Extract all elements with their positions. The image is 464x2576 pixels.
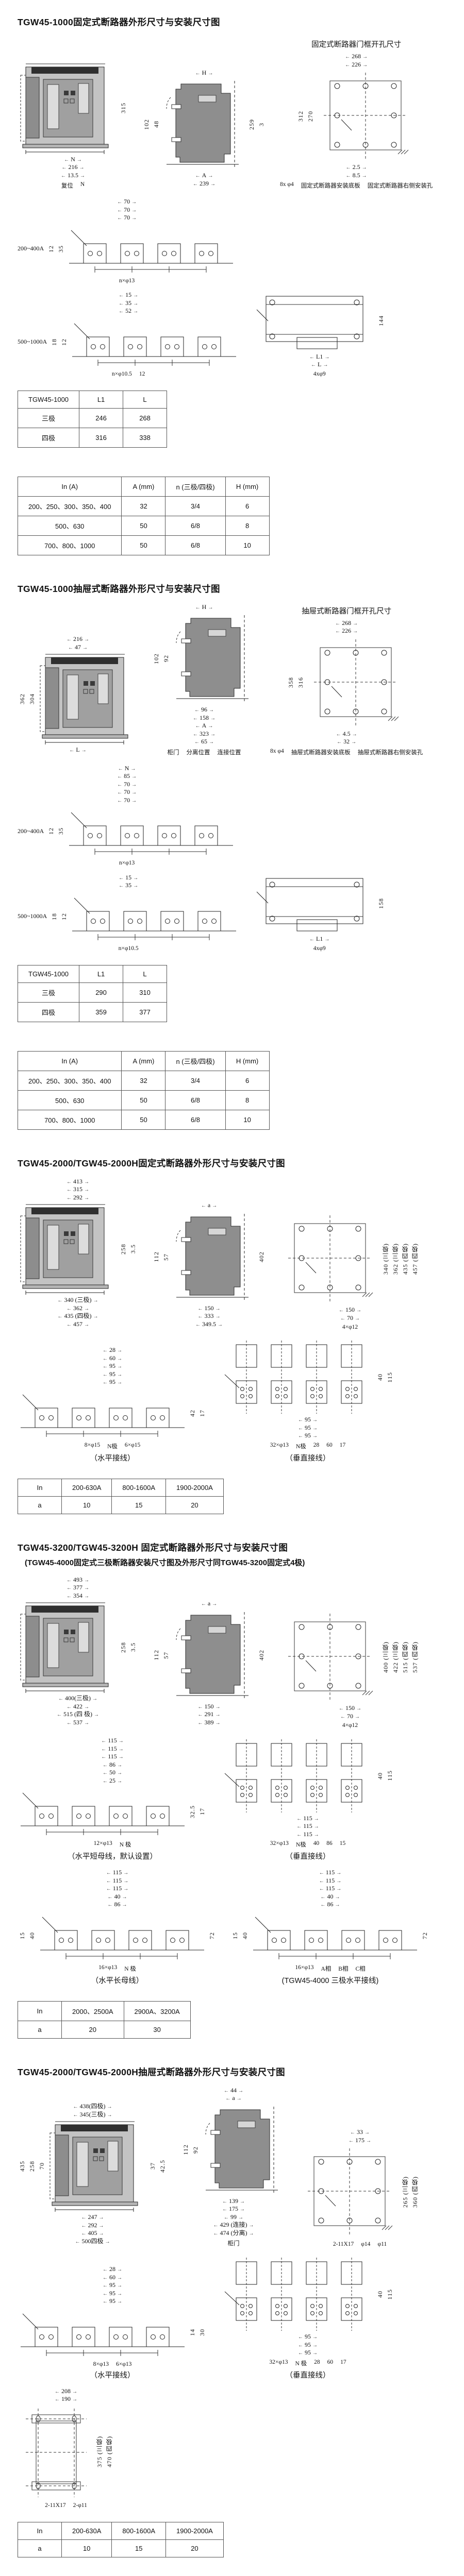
- figure-caption: （垂直接线）: [286, 2369, 330, 2380]
- dim-label: 12: [60, 913, 68, 920]
- table-cell: H (mm): [225, 1051, 269, 1071]
- table-cell: In: [18, 2522, 62, 2539]
- dim-label: 400 (三极): [382, 1641, 390, 1673]
- table-cell: 338: [123, 428, 167, 447]
- dim-label: 291: [198, 1710, 221, 1719]
- dim-label: 70: [38, 2162, 46, 2170]
- dim-label: 115: [319, 1885, 342, 1893]
- dim-label: 226: [335, 627, 358, 635]
- table-cell: 700、800、1000: [18, 535, 122, 555]
- left-labels: 1235: [46, 245, 66, 252]
- figure-grid: 340 (三极)362 (三极)435 (四极)457 (四极)150704×φ…: [280, 1211, 420, 1330]
- table-cell: 15: [112, 1496, 166, 1514]
- dim-label: 95: [103, 2290, 122, 2298]
- callout-label: N 极: [120, 1840, 131, 1849]
- figure-grid: 4933773542583.5400(三极)422515 (四 极)537: [18, 1576, 138, 1729]
- figure-mid: 1430: [18, 2306, 207, 2359]
- dim-label: 86: [103, 1761, 122, 1769]
- dim-label: 70: [340, 1713, 360, 1721]
- callout-label: 抽屉式断路器安装底板: [291, 748, 351, 756]
- notes-labels: 复位N: [61, 181, 85, 190]
- figure-terminal-h: 707070200~400A1235n×φ13: [18, 198, 236, 284]
- dim-label: 150: [339, 1306, 361, 1314]
- dim-label: 40: [321, 1893, 340, 1901]
- dim-label: 95: [103, 1362, 122, 1370]
- right-labels: 400 (三极)422 (三极)515 (四极)537 (四极): [381, 1641, 420, 1673]
- figure-terminal-h: 286095959542178×φ15N极6×φ15（水平接线）: [18, 1346, 207, 1465]
- dim-label: 259: [248, 119, 256, 130]
- dim-label: 92: [192, 2146, 200, 2154]
- left-labels: 1812: [49, 913, 69, 920]
- dim-label: 35: [119, 299, 138, 308]
- table-row: 三极290310: [18, 982, 167, 1002]
- dimension-table: TGW45-1000L1L三极290310四极359377: [18, 965, 167, 1022]
- table-header-row: In200-630A800-1600A1900-2000A: [18, 1479, 224, 1496]
- table-cell: 6: [225, 496, 269, 516]
- figure-side: a11257402150291389: [152, 1600, 267, 1728]
- notes-labels: n×φ13: [119, 278, 135, 284]
- drawing-sketch: [250, 1909, 420, 1962]
- callout-label: 8×φ13: [93, 2361, 109, 2367]
- table-cell: 800-1600A: [112, 1479, 166, 1496]
- callout-label: 复位: [61, 181, 73, 190]
- dim-label: 304: [28, 693, 36, 704]
- table-cell: 32: [122, 496, 165, 516]
- figure-row: 11511511586502532.51712×φ13N 极（水平短母线，默认设…: [18, 1737, 446, 1988]
- figure-side: 44a1129213917599429 (连接)474 (分离)柜门: [181, 2087, 286, 2248]
- left-labels: 10292: [152, 653, 171, 664]
- figure-holes: 33175265 (三极)360 (四极)2-11X17φ14φ11: [300, 2128, 420, 2247]
- dim-label: 413: [67, 1178, 89, 1186]
- dim-label: 258: [120, 1642, 127, 1653]
- dim-label: 18: [51, 913, 58, 920]
- dim-label: 115: [386, 1372, 394, 1383]
- right-labels: 375 (三极)470 (四极): [95, 2436, 114, 2467]
- dim-label: 40: [376, 1374, 384, 1381]
- drawing-sketch: [253, 289, 376, 353]
- drawing-sketch: [280, 1609, 381, 1704]
- figure-grid: 1535500~1000A1812n×φ10.5: [18, 874, 239, 952]
- figure-mid: 10292: [152, 611, 257, 706]
- figure-grid: H1029296158A32365柜门分离位置连接位置: [152, 603, 257, 756]
- dim-label: 92: [162, 655, 170, 662]
- notes-labels: 12×φ13N 极: [94, 1840, 131, 1849]
- figure-mid: 11257402: [152, 1608, 267, 1703]
- callout-label: 16×φ13: [295, 1964, 313, 1973]
- figure-mid: 362304: [18, 651, 138, 746]
- table-cell: 20: [166, 2539, 224, 2557]
- dim-label: 102: [153, 653, 160, 664]
- dim-label: 70: [117, 198, 137, 206]
- figure-grid: 11511511586502532.51712×φ13N 极: [18, 1737, 207, 1849]
- table-header-row: TGW45-1000L1L: [18, 965, 167, 982]
- notes-labels: 4xφ9: [313, 371, 326, 377]
- dim-label: 32: [337, 738, 356, 746]
- callout-label: 17: [340, 1442, 346, 1450]
- dim-label: 115: [296, 1815, 319, 1823]
- table-cell: a: [18, 2539, 62, 2557]
- right-labels: 1430: [188, 2329, 207, 2336]
- table-row: a101520: [18, 2539, 224, 2557]
- callout-label: 柜门: [168, 748, 179, 756]
- table-cell: n (三极/四极): [165, 1051, 225, 1071]
- dim-label: 429 (连接): [213, 2221, 254, 2229]
- callout-label: 2-11X17: [45, 2502, 65, 2509]
- figure-grid: H102482593A239: [142, 69, 267, 190]
- dim-label: 226: [345, 61, 368, 69]
- right-labels: 340 (三极)362 (三极)435 (四极)457 (四极): [381, 1243, 420, 1275]
- table-cell: A (mm): [122, 477, 165, 496]
- table-cell: 200、250、300、350、400: [18, 1071, 122, 1090]
- figure-grid: 4011595959532×φ13N极286017: [221, 1338, 395, 1450]
- tables-row: TGW45-1000L1L三极290310四极359377In (A)A (mm…: [18, 965, 446, 1130]
- dimension-table: In (A)A (mm)n (三极/四极)H (mm)200、250、300、3…: [18, 477, 270, 555]
- dim-label: 345(三极): [73, 2111, 112, 2119]
- figure-side: a11257402150333349.5: [152, 1201, 267, 1330]
- drawing-sketch: [300, 2144, 401, 2239]
- right-labels: 158: [376, 898, 386, 909]
- left-labels: 1235: [46, 827, 66, 835]
- figure-mid: 40115: [221, 1737, 395, 1815]
- callout-label: n×φ13: [119, 278, 135, 284]
- dim-label: 268: [345, 53, 368, 61]
- figure-row: 286095959514308×φ136×φ13（水平接线）4011595959…: [18, 2256, 446, 2509]
- dim-label: 47: [68, 643, 88, 652]
- table-cell: 2000、2500A: [62, 2001, 124, 2021]
- figure-row: 21647362304LH1029296158A32365柜门分离位置连接位置抽…: [18, 603, 446, 756]
- table-cell: a: [18, 1496, 62, 1514]
- tables-row: In2000、2500A2900A、3200Aa2030: [18, 2001, 446, 2039]
- figure-grid: 144L1L4xφ9: [253, 289, 386, 377]
- bottom-labels: 4.532: [336, 730, 357, 746]
- callout-label: n×φ13: [119, 860, 135, 866]
- terminal-rating-label: 500~1000A: [18, 338, 47, 346]
- dim-label: a: [225, 2094, 241, 2103]
- callout-label: 4×φ12: [342, 1722, 358, 1728]
- figure-terminal-v: 4011511511511532×φ13N极408615（垂直接线）: [221, 1737, 395, 1864]
- callout-label: φ11: [377, 2241, 387, 2247]
- table-cell: In: [18, 1479, 62, 1496]
- figure-caption: (TGW45-4000 三极水平接线): [282, 1975, 379, 1986]
- table-cell: 290: [79, 982, 123, 1002]
- dim-label: 258: [120, 1244, 127, 1255]
- left-labels: 1540: [230, 1932, 250, 1939]
- figure-caption: （水平接线）: [90, 2369, 135, 2380]
- dim-label: 70: [117, 796, 137, 805]
- notes-labels: 4×φ12: [342, 1722, 358, 1728]
- table-header-row: TGW45-1000L1L: [18, 391, 167, 408]
- dim-label: L1: [309, 353, 329, 361]
- figure-grid: 21647362304L: [18, 635, 138, 756]
- table-cell: 50: [122, 1090, 165, 1110]
- figure-grid: 400 (三极)422 (三极)515 (四极)537 (四极)150704×φ…: [280, 1609, 420, 1728]
- figure-grid: 33175265 (三极)360 (四极)2-11X17φ14φ11: [300, 2128, 420, 2247]
- table-cell: 800-1600A: [112, 2522, 166, 2539]
- dim-label: 65: [194, 738, 214, 746]
- table-row: a2030: [18, 2021, 191, 2038]
- right-labels: 3742.5: [148, 2160, 168, 2173]
- dim-label: A: [195, 722, 213, 730]
- callout-label: 32×φ13: [270, 1442, 289, 1450]
- top-labels: a: [201, 1201, 217, 1210]
- right-labels: 2583.5: [119, 1642, 138, 1653]
- dim-label: 158: [377, 898, 385, 909]
- figure-row: N85707070200~400A1235n×φ131535500~1000A1…: [18, 765, 446, 952]
- dim-label: 28: [103, 1346, 122, 1354]
- drawing-sketch: [18, 1600, 119, 1694]
- drawing-sketch: [18, 1201, 119, 1296]
- dim-label: 422: [67, 1703, 89, 1711]
- figure-front: 315N21613.5复位N: [18, 61, 128, 190]
- callout-label: 6×φ15: [125, 1442, 140, 1450]
- drawing-sketch: [66, 222, 236, 276]
- dim-label: 493: [67, 1576, 89, 1584]
- notes-labels: 8x φ4固定式断路器安装底板固定式断路器右侧安装孔: [280, 181, 433, 190]
- right-labels: 72: [207, 1932, 217, 1939]
- dim-label: 292: [67, 1194, 89, 1202]
- callout-label: N: [80, 181, 85, 190]
- dim-label: 115: [101, 1753, 124, 1761]
- drawing-sketch: [171, 611, 257, 706]
- figure-grid: 707070200~400A1235n×φ13: [18, 198, 236, 284]
- top-labels: 44a: [224, 2087, 243, 2103]
- dim-label: 35: [119, 882, 138, 890]
- table-cell: 377: [123, 1002, 167, 1022]
- figure-holes: 固定式断路器门框开孔尺寸2682263122702.58.58x φ4固定式断路…: [280, 37, 433, 190]
- table-row: 四极316338: [18, 428, 167, 447]
- dim-label: 400(三极): [58, 1694, 97, 1703]
- section-subtitle: (TGW45-4000固定式三极断路器安装尺寸图及外形尺寸同TGW45-3200…: [25, 1557, 446, 1568]
- dim-label: 72: [208, 1932, 216, 1939]
- figure-mid: 158: [253, 871, 386, 935]
- figure-mid: 154072: [18, 1909, 217, 1962]
- bottom-labels: 400(三极)422515 (四 极)537: [57, 1694, 99, 1726]
- callout-label: n×φ10.5: [112, 371, 132, 377]
- dim-label: 15: [19, 1932, 26, 1939]
- figure-grid: 4011595959532×φ13N 极286017: [221, 2256, 395, 2367]
- dimension-table: In (A)A (mm)n (三极/四极)H (mm)200、250、300、3…: [18, 1051, 270, 1130]
- bottom-labels: L: [69, 746, 86, 754]
- callout-label: 柜门: [228, 2239, 240, 2247]
- top-labels: 268226: [345, 53, 368, 69]
- figure-grid: 153552500~1000A1812n×φ10.512: [18, 291, 239, 377]
- dim-label: 15: [119, 874, 138, 882]
- dim-label: 44: [224, 2087, 243, 2095]
- bottom-labels: 2.58.5: [346, 163, 367, 179]
- notes-labels: 柜门分离位置连接位置: [168, 748, 241, 756]
- callout-label: 固定式断路器安装底板: [301, 181, 360, 190]
- section-title: TGW45-2000/TGW45-2000H抽屉式断路器外形尺寸与安装尺寸图: [18, 2065, 446, 2078]
- section-title: TGW45-2000/TGW45-2000H固定式断路器外形尺寸与安装尺寸图: [18, 1157, 446, 1170]
- terminal-rating-label: 200~400A: [18, 245, 44, 252]
- tables-row: TGW45-1000L1L三极246268四极316338In (A)A (mm…: [18, 391, 446, 555]
- table-row: 700、800、1000506/810: [18, 1110, 270, 1129]
- dim-label: 139: [222, 2197, 245, 2206]
- dim-label: 37: [149, 2162, 157, 2170]
- table-cell: 200-630A: [62, 1479, 112, 1496]
- table-cell: 310: [123, 982, 167, 1002]
- dim-label: 190: [55, 2395, 77, 2403]
- figure-terminal-v: 4011595959532×φ13N极286017（垂直接线）: [221, 1338, 395, 1465]
- dim-label: 150: [339, 1704, 361, 1713]
- table-cell: L: [123, 965, 167, 982]
- dim-label: 265 (三极): [402, 2176, 409, 2208]
- figure-grid: 286095959514308×φ136×φ13: [18, 2265, 207, 2367]
- dim-label: 102: [143, 119, 151, 130]
- bottom-labels: L1L: [309, 353, 329, 369]
- dim-label: 60: [103, 1354, 122, 1363]
- dim-label: 112: [153, 1650, 160, 1660]
- figure-mid: 2583.5: [18, 1201, 138, 1296]
- drawing-sketch: [253, 871, 376, 935]
- right-labels: 72: [420, 1932, 430, 1939]
- bottom-labels: L1: [309, 935, 329, 943]
- figure-terminal-h: 153552500~1000A1812n×φ10.512: [18, 291, 239, 377]
- table-cell: 6/8: [165, 516, 225, 535]
- table-row: 500、630506/88: [18, 516, 270, 535]
- top-labels: 1151151154086: [319, 1869, 342, 1909]
- dim-label: 537 (四极): [411, 1641, 419, 1673]
- callout-label: 60: [327, 2359, 334, 2367]
- figure-mid: 500~1000A1812: [18, 890, 239, 943]
- figure-mid: 144: [253, 289, 386, 353]
- top-labels: 1535: [119, 874, 138, 890]
- table-cell: 316: [79, 428, 123, 447]
- right-labels: 40115: [375, 2289, 395, 2300]
- table-cell: 50: [122, 1110, 165, 1129]
- bottom-labels: 959595: [298, 2333, 318, 2357]
- dim-label: 12: [47, 827, 55, 835]
- dim-label: 112: [182, 2144, 190, 2155]
- dim-label: L: [311, 361, 328, 369]
- bottom-labels: 340 (三极)362435 (四极)457: [58, 1296, 98, 1328]
- figure-grid: a11257402150291389: [152, 1600, 267, 1728]
- figure-terminal-h: 115115115408615407216×φ13A相B相C相(TGW45-40…: [230, 1869, 430, 1988]
- figure-mid: 312270: [296, 69, 417, 163]
- notes-labels: 柜门: [228, 2239, 240, 2247]
- dim-label: 323: [193, 730, 216, 738]
- dim-label: 292: [81, 2222, 104, 2230]
- callout-label: N 极: [295, 2359, 307, 2367]
- dim-label: H: [195, 69, 213, 77]
- right-labels: 402: [257, 1650, 267, 1660]
- table-cell: 1900-2000A: [166, 1479, 224, 1496]
- figure-grid: 115115115408615407216×φ13A相B相C相: [230, 1869, 430, 1973]
- table-cell: 四极: [18, 1002, 79, 1022]
- dim-label: 33: [350, 2128, 370, 2137]
- tables-row: In200-630A800-1600A1900-2000Aa101520: [18, 2522, 446, 2557]
- dim-label: 115: [106, 1877, 129, 1885]
- table-cell: 50: [122, 535, 165, 555]
- top-labels: 413315292: [67, 1178, 89, 1202]
- dim-label: 115: [296, 1831, 319, 1839]
- callout-label: 连接位置: [218, 748, 241, 756]
- section-4: TGW45-3200/TGW45-3200H 固定式断路器外形尺寸与安装尺寸图(…: [18, 1541, 446, 2039]
- figure-mid: 315: [18, 61, 128, 156]
- right-labels: 402: [257, 1251, 267, 1262]
- drawing-sketch: [171, 1210, 257, 1304]
- section-5: TGW45-2000/TGW45-2000H抽屉式断路器外形尺寸与安装尺寸图43…: [18, 2065, 446, 2557]
- drawing-sketch: [69, 315, 239, 369]
- table-cell: 6/8: [165, 1110, 225, 1129]
- table-cell: 700、800、1000: [18, 1110, 122, 1129]
- callout-label: 16×φ13: [98, 1964, 117, 1973]
- right-labels: 265 (三极)360 (四极): [401, 2176, 420, 2208]
- figure-front: 21647362304L: [18, 635, 138, 756]
- dim-label: 312: [297, 111, 305, 122]
- dim-label: 158: [193, 714, 216, 722]
- table-cell: 200-630A: [62, 2522, 112, 2539]
- dim-label: 95: [298, 2349, 318, 2357]
- dim-label: 402: [258, 1251, 266, 1262]
- figure-front: 438(四极)345(三极)435258703742.5247292405500…: [18, 2103, 168, 2247]
- dim-label: 3.5: [129, 1244, 137, 1253]
- figure-caption-top: 固定式断路器门框开孔尺寸: [311, 39, 401, 49]
- figure-mid: 200~400A1235: [18, 804, 236, 858]
- notes-labels: 32×φ13N极408615: [270, 1840, 345, 1849]
- callout-label: 4×φ12: [342, 1324, 358, 1330]
- figure-grid: N85707070200~400A1235n×φ13: [18, 765, 236, 867]
- left-labels: 1540: [18, 1932, 37, 1939]
- dim-label: 354: [67, 1592, 89, 1600]
- table-row: 四极359377: [18, 1002, 167, 1022]
- dim-label: 14: [189, 2329, 196, 2336]
- dim-label: 340 (三极): [382, 1243, 390, 1275]
- top-labels: a: [201, 1600, 217, 1608]
- dim-label: 35: [57, 245, 65, 252]
- dim-label: 144: [377, 315, 385, 326]
- dim-label: 57: [162, 1652, 170, 1659]
- figure-grid: a11257402150333349.5: [152, 1201, 267, 1330]
- dim-label: H: [195, 603, 213, 612]
- dim-label: 457 (四极): [411, 1243, 419, 1275]
- section-2: TGW45-1000抽屉式断路器外形尺寸与安装尺寸图21647362304LH1…: [18, 582, 446, 1130]
- figure-mid: 435258703742.5: [18, 2119, 168, 2213]
- bottom-labels: 15070: [339, 1306, 361, 1322]
- notes-labels: 16×φ13N 极: [98, 1964, 136, 1973]
- dim-label: a: [201, 1600, 217, 1608]
- figure-side: H102482593A239: [142, 69, 267, 190]
- drawing-sketch: [18, 1386, 188, 1440]
- left-labels: 11292: [181, 2144, 201, 2155]
- table-row: 三极246268: [18, 408, 167, 428]
- dim-label: 150: [198, 1703, 221, 1711]
- table-cell: 三极: [18, 408, 79, 428]
- table-cell: 30: [124, 2021, 190, 2038]
- table-cell: L1: [79, 391, 123, 408]
- left-labels: 10248: [142, 119, 161, 130]
- dim-label: 85: [117, 772, 137, 781]
- callout-label: 17: [340, 2359, 346, 2367]
- figure-row: 4133152922583.5340 (三极)362435 (四极)457a11…: [18, 1178, 446, 1331]
- dim-label: 333: [198, 1312, 221, 1320]
- figure-side: H1029296158A32365柜门分离位置连接位置: [152, 603, 257, 756]
- figure-mid: 358316: [286, 635, 407, 730]
- table-cell: 6: [225, 1071, 269, 1090]
- figure-mid: 102482593: [142, 77, 267, 172]
- dim-label: 360 (四极): [411, 2176, 419, 2208]
- notes-labels: 2-11X17φ14φ11: [333, 2241, 387, 2247]
- table-cell: 四极: [18, 428, 79, 447]
- figure-caption: （水平短母线，默认设置）: [68, 1851, 157, 1861]
- dim-label: 115: [106, 1885, 129, 1893]
- dim-label: 40: [376, 2291, 384, 2298]
- callout-label: 4xφ9: [313, 371, 326, 377]
- figure-mid: 40115: [221, 1338, 395, 1416]
- callout-label: 15: [340, 1840, 346, 1849]
- right-labels: 315: [119, 103, 128, 113]
- dim-label: 95: [103, 2297, 122, 2306]
